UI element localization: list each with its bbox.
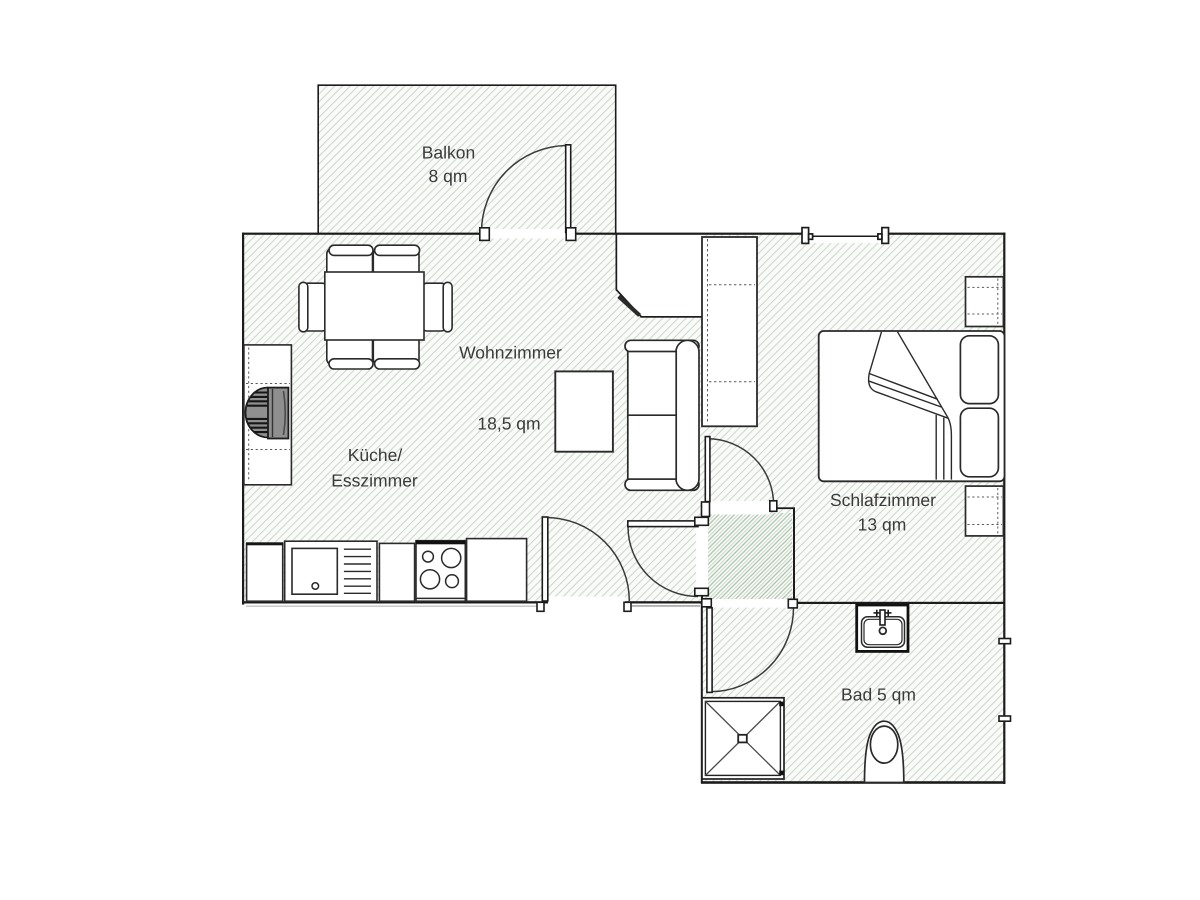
svg-text:Küche/: Küche/	[348, 445, 403, 465]
svg-text:8 qm: 8 qm	[429, 166, 468, 186]
svg-text:Wohnzimmer: Wohnzimmer	[459, 342, 562, 362]
svg-text:Balkon: Balkon	[422, 143, 476, 163]
svg-text:Esszimmer: Esszimmer	[331, 470, 418, 490]
svg-text:13 qm: 13 qm	[858, 515, 907, 535]
svg-text:18,5 qm: 18,5 qm	[477, 413, 540, 433]
svg-text:Schlafzimmer: Schlafzimmer	[830, 490, 936, 510]
svg-text:Bad 5 qm: Bad 5 qm	[841, 685, 916, 705]
